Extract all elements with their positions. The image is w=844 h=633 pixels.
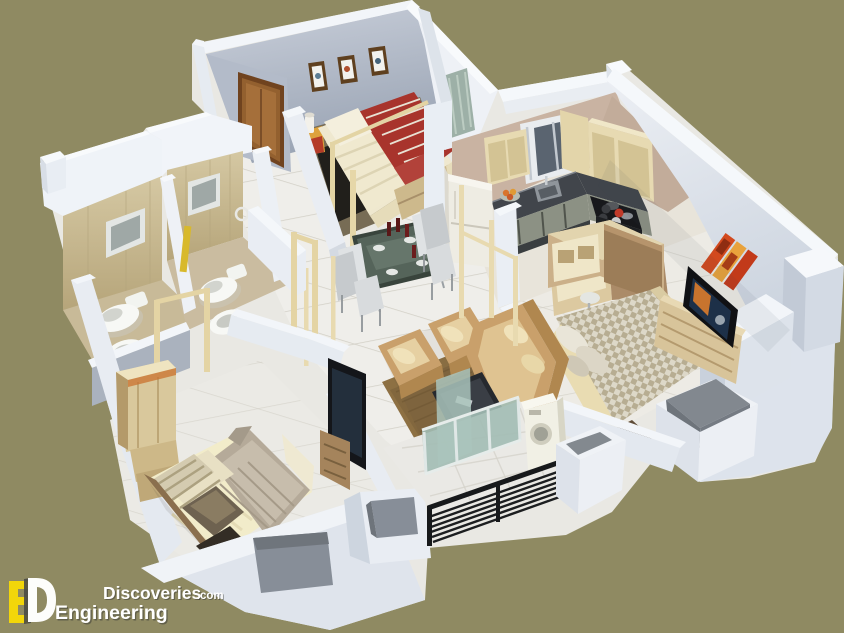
svg-text:Engineering: Engineering xyxy=(55,602,168,624)
svg-text:Discoveries: Discoveries xyxy=(103,583,202,603)
svg-text:.com: .com xyxy=(197,590,224,602)
